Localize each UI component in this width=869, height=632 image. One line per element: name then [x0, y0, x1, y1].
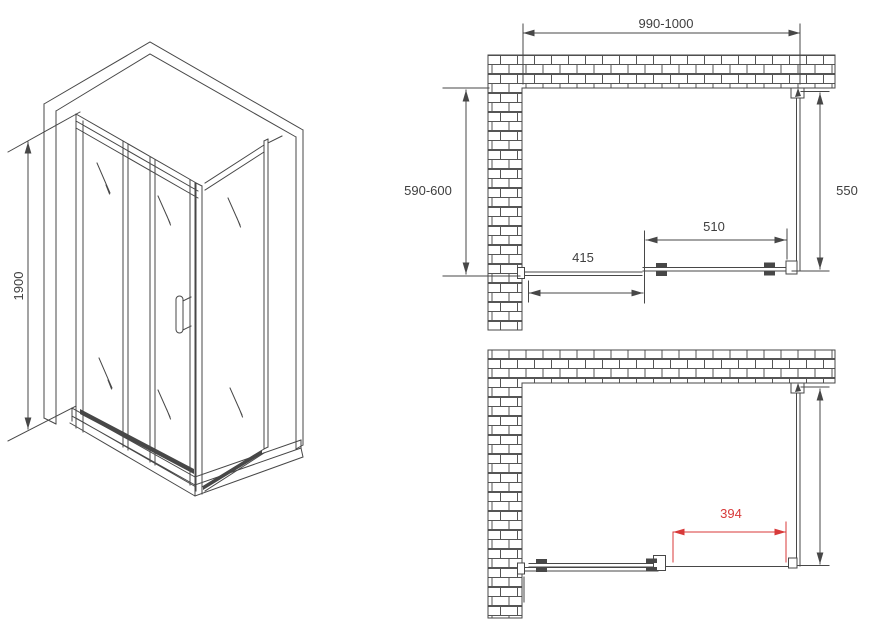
wall-hatch-top-view	[488, 55, 835, 330]
fixed-panel-plan	[522, 272, 642, 276]
door-dimension: 510	[645, 219, 788, 303]
opening-dimension-label: 394	[720, 506, 742, 521]
side-panel-dimension: 550	[792, 92, 858, 272]
track-line	[524, 567, 796, 603]
opening-dimension: 394	[673, 506, 786, 562]
glass-shine-marks	[97, 163, 243, 419]
plan-view-bottom: 394	[488, 350, 835, 618]
door-end-bracket	[786, 261, 797, 274]
depth-dimension-label: 590-600	[404, 183, 452, 198]
side-panel-dimension-unlabeled	[798, 387, 829, 566]
door-rollers	[536, 559, 657, 573]
wall-attach-bracket	[518, 268, 525, 279]
fixed-panel-dimension-label: 415	[572, 250, 594, 265]
corner-bracket	[789, 558, 798, 568]
isometric-view: 1900	[8, 42, 303, 496]
shower-enclosure-technical-drawing: 1900 990-1000 590-600	[0, 0, 869, 632]
plan-view-top: 990-1000 590-600 550 510 415	[404, 16, 858, 330]
wall-hatch-bottom-view	[488, 350, 835, 618]
wall-attach-bracket	[518, 563, 525, 574]
height-dimension-label: 1900	[11, 272, 26, 301]
side-panel-dimension-label: 550	[836, 183, 858, 198]
bottom-rail-dark-band	[80, 409, 262, 490]
sliding-door-open-plan	[529, 564, 664, 568]
width-dimension-label: 990-1000	[639, 16, 694, 31]
door-dimension-label: 510	[703, 219, 725, 234]
door-handle-icon	[176, 296, 191, 333]
sliding-door-plan	[643, 268, 788, 272]
side-panel-frame	[202, 136, 282, 491]
side-panel-plan	[797, 392, 801, 566]
door-rollers	[656, 263, 775, 277]
side-panel-plan	[797, 97, 801, 271]
